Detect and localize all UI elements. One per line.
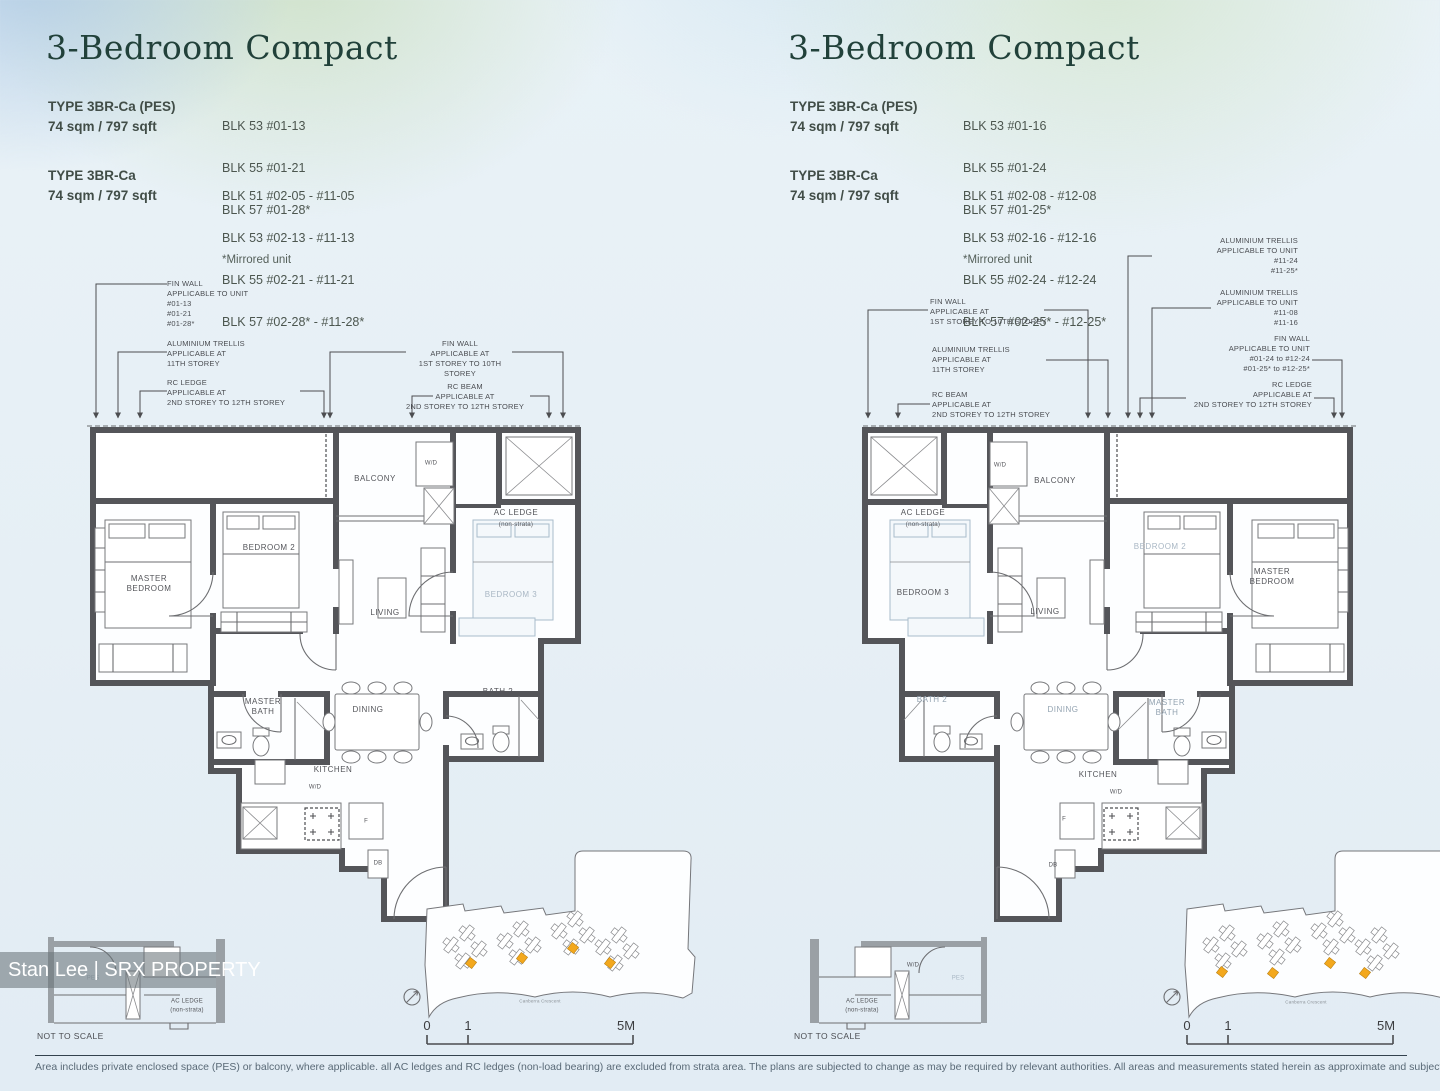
callout-fin-wall-storey: FIN WALL APPLICABLE AT 1ST STOREY TO 10T… xyxy=(404,339,516,379)
room-label-bedroom-2: BEDROOM 2 xyxy=(1134,542,1187,552)
room-label-wd: W/D xyxy=(425,461,437,468)
room-label-fridge: F xyxy=(1062,817,1066,824)
street-label: Canberra Crescent xyxy=(1285,1000,1326,1005)
scale-one: 1 xyxy=(1224,1018,1231,1033)
not-to-scale-note: NOT TO SCALE xyxy=(794,1031,861,1041)
mirrored-unit-note: *Mirrored unit xyxy=(963,254,1032,266)
type-name: TYPE 3BR-Ca xyxy=(790,166,878,186)
street-label: Canberra Crescent xyxy=(519,999,560,1004)
footer-divider xyxy=(35,1055,1407,1056)
scale-five: 5M xyxy=(617,1018,635,1033)
room-label-ac-ledge: AC LEDGE xyxy=(494,508,538,518)
callout-rc-ledge: RC LEDGE APPLICABLE AT 2ND STOREY TO 12T… xyxy=(167,378,285,408)
scale-zero: 0 xyxy=(1183,1018,1190,1033)
room-label-living: LIVING xyxy=(1030,607,1059,617)
callout-fin-wall-storey: FIN WALL APPLICABLE AT 1ST STOREY TO 10T… xyxy=(930,297,1047,327)
room-label-db: DB xyxy=(1049,863,1058,870)
callout-trellis-unit-b: ALUMINIUM TRELLIS APPLICABLE TO UNIT #11… xyxy=(1190,288,1298,328)
callout-aluminium-trellis: ALUMINIUM TRELLIS APPLICABLE AT 11TH STO… xyxy=(932,345,1010,375)
page-title: 3-Bedroom Compact xyxy=(46,28,398,67)
callout-trellis-unit-a: ALUMINIUM TRELLIS APPLICABLE TO UNIT #11… xyxy=(1190,236,1298,276)
section-label-ac-ledge-sub: (non-strata) xyxy=(845,1008,878,1015)
room-label-ac-ledge: AC LEDGE xyxy=(901,508,945,518)
room-label-dining: DINING xyxy=(1048,705,1079,715)
callout-rc-ledge: RC LEDGE APPLICABLE AT 2ND STOREY TO 12T… xyxy=(1178,380,1312,410)
section-label-pes: PES xyxy=(952,976,965,983)
section-label-wd: W/D xyxy=(907,963,919,970)
watermark: Stan Lee | SRX PROPERTY xyxy=(0,952,216,988)
room-label-master-bedroom: MASTER BEDROOM xyxy=(1250,567,1295,587)
room-label-kitchen: KITCHEN xyxy=(314,765,353,775)
room-label-master-bath: MASTER BATH xyxy=(245,697,281,717)
scale-one: 1 xyxy=(464,1018,471,1033)
room-label-bedroom-3: BEDROOM 3 xyxy=(897,588,950,598)
room-label-db: DB xyxy=(374,861,383,868)
room-label-master-bedroom: MASTER BEDROOM xyxy=(127,574,172,594)
type-area: 74 sqm / 797 sqft xyxy=(48,117,157,137)
room-label-ac-ledge-sub: (non-strata) xyxy=(499,520,533,530)
disclaimer-text: Area includes private enclosed space (PE… xyxy=(35,1061,1415,1073)
room-label-dining: DINING xyxy=(353,705,384,715)
callout-rc-beam: RC BEAM APPLICABLE AT 2ND STOREY TO 12TH… xyxy=(932,390,1050,420)
page-title: 3-Bedroom Compact xyxy=(788,28,1140,67)
scale-five: 5M xyxy=(1377,1018,1395,1033)
room-label-living: LIVING xyxy=(370,608,399,618)
callout-fin-wall-unit: FIN WALL APPLICABLE TO UNIT #01-13 #01-2… xyxy=(167,279,248,329)
room-label-wd: W/D xyxy=(994,463,1006,470)
room-label-master-bath: MASTER BATH xyxy=(1149,698,1185,718)
section-label-ac-ledge-sub: (non-strata) xyxy=(170,1008,203,1015)
section-label-ac-ledge: AC LEDGE xyxy=(846,999,878,1006)
room-label-ac-ledge-sub: (non-strata) xyxy=(906,520,940,530)
type-name: TYPE 3BR-Ca xyxy=(48,166,136,186)
type-area: 74 sqm / 797 sqft xyxy=(790,117,899,137)
callout-rc-beam: RC BEAM APPLICABLE AT 2ND STOREY TO 12TH… xyxy=(398,382,532,412)
room-label-bath-2: BATH 2 xyxy=(917,695,947,705)
section-label-ac-ledge: AC LEDGE xyxy=(171,999,203,1006)
type-area: 74 sqm / 797 sqft xyxy=(48,186,157,206)
type-name: TYPE 3BR-Ca (PES) xyxy=(48,97,176,117)
room-label-bedroom-2: BEDROOM 2 xyxy=(243,543,296,553)
scale-zero: 0 xyxy=(423,1018,430,1033)
room-label-balcony: BALCONY xyxy=(354,474,396,484)
type-area: 74 sqm / 797 sqft xyxy=(790,186,899,206)
room-label-balcony: BALCONY xyxy=(1034,476,1076,486)
mirrored-unit-note: *Mirrored unit xyxy=(222,254,291,266)
callout-aluminium-trellis: ALUMINIUM TRELLIS APPLICABLE AT 11TH STO… xyxy=(167,339,245,369)
room-label-bath-2: BATH 2 xyxy=(483,687,513,697)
room-label-wd-kitchen: W/D xyxy=(309,785,321,792)
room-label-bedroom-3: BEDROOM 3 xyxy=(485,590,538,600)
type-name: TYPE 3BR-Ca (PES) xyxy=(790,97,918,117)
room-label-wd-kitchen: W/D xyxy=(1110,790,1122,797)
callout-fin-wall-unit: FIN WALL APPLICABLE TO UNIT #01-24 to #1… xyxy=(1182,334,1310,374)
not-to-scale-note: NOT TO SCALE xyxy=(37,1031,104,1041)
room-label-fridge: F xyxy=(364,819,368,826)
floorplan-page: 3-Bedroom Compact TYPE 3BR-Ca (PES) 74 s… xyxy=(0,0,1440,1091)
room-label-kitchen: KITCHEN xyxy=(1079,770,1118,780)
